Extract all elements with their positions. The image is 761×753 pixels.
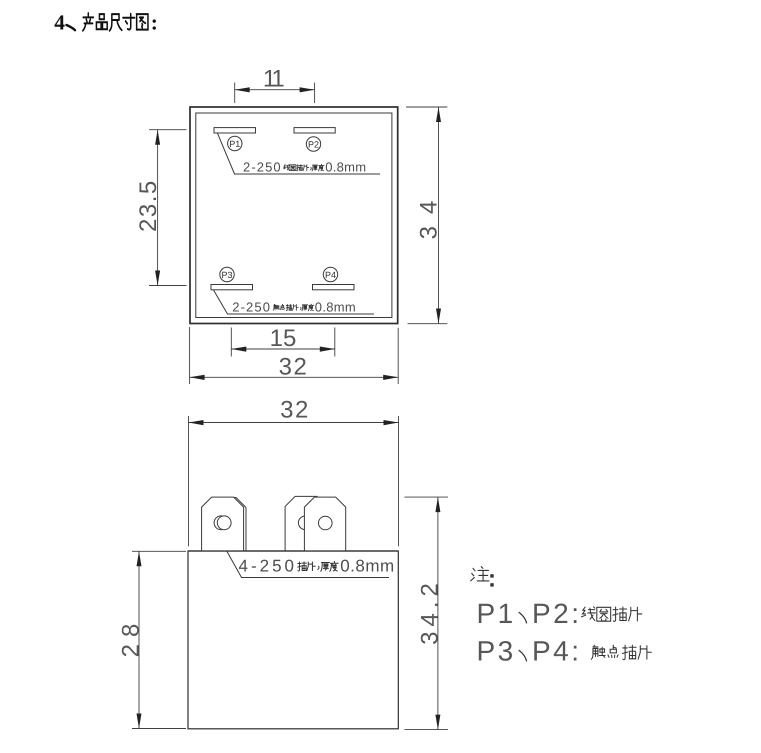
svg-text:4: 4 [54, 11, 65, 35]
svg-text:P4:: P4: [532, 636, 582, 667]
svg-text:P3: P3 [221, 270, 232, 280]
svg-text:P1: P1 [229, 139, 240, 149]
svg-text:0.8mm: 0.8mm [315, 299, 356, 314]
svg-text:P2:: P2: [532, 598, 582, 629]
svg-text:P1: P1 [477, 598, 516, 629]
svg-text:2-250: 2-250 [243, 160, 282, 175]
svg-text:28: 28 [118, 617, 145, 658]
svg-text:2-250: 2-250 [232, 299, 271, 314]
svg-text:0.8mm: 0.8mm [340, 557, 394, 576]
svg-text:11: 11 [263, 66, 285, 93]
svg-text:P2: P2 [308, 139, 319, 149]
svg-text:32: 32 [280, 397, 310, 424]
svg-text:0.8mm: 0.8mm [325, 160, 366, 175]
svg-text:P3: P3 [477, 636, 516, 667]
svg-text:34.2: 34.2 [417, 578, 444, 645]
svg-text:34: 34 [416, 189, 443, 240]
svg-text:4-250: 4-250 [239, 557, 297, 576]
svg-text:15: 15 [270, 325, 297, 352]
svg-text:23.5: 23.5 [135, 179, 162, 232]
svg-text::: : [151, 11, 158, 35]
svg-text:P4: P4 [325, 270, 336, 280]
svg-text:32: 32 [279, 354, 309, 381]
